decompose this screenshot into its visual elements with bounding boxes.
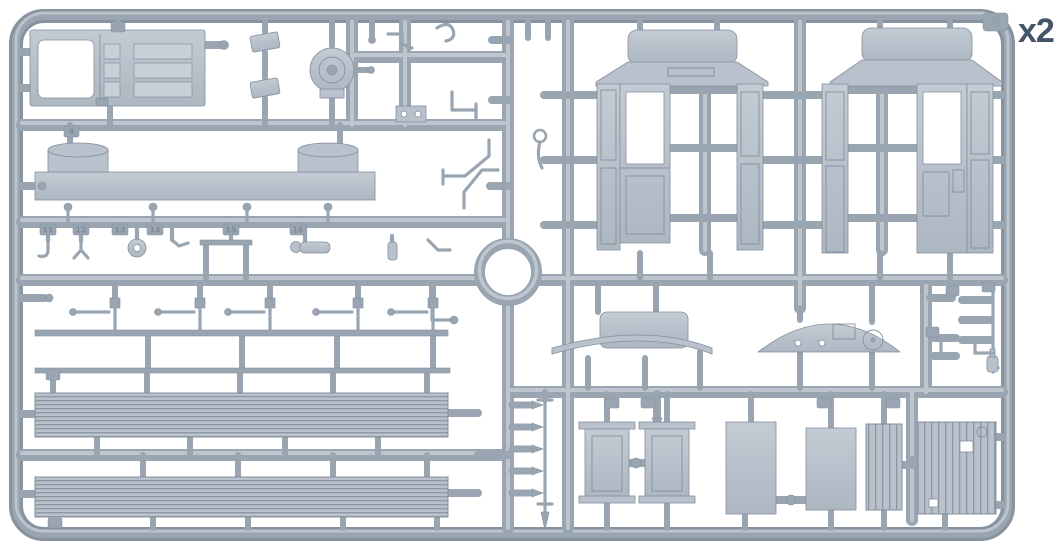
tag-12: 12	[75, 226, 86, 235]
part-floor-panel	[30, 30, 229, 106]
pole-part	[538, 398, 552, 530]
tag-13: 13	[114, 226, 125, 235]
clerestory-roof-part	[552, 312, 712, 354]
door-and-floor-panels	[579, 422, 996, 514]
sprue-diagram-screen: 9 11 12 13 14 15 16 B x2	[0, 0, 1059, 547]
sprue-diagram: 9 11 12 13 14 15 16 B x2	[0, 0, 1059, 547]
small-parts-top	[369, 24, 547, 168]
curved-roof-part	[758, 324, 900, 352]
sprue-letter: B	[990, 15, 1001, 31]
tag-14: 14	[149, 226, 161, 235]
tag-16: 16	[292, 226, 304, 235]
part-platform-beam	[35, 140, 498, 222]
tag-11: 11	[42, 226, 54, 235]
tag-9: 9	[69, 128, 75, 137]
tag-15: 15	[225, 226, 237, 235]
quantity-label: x2	[1018, 12, 1054, 50]
sprue-letter-tab: B	[983, 13, 1008, 31]
